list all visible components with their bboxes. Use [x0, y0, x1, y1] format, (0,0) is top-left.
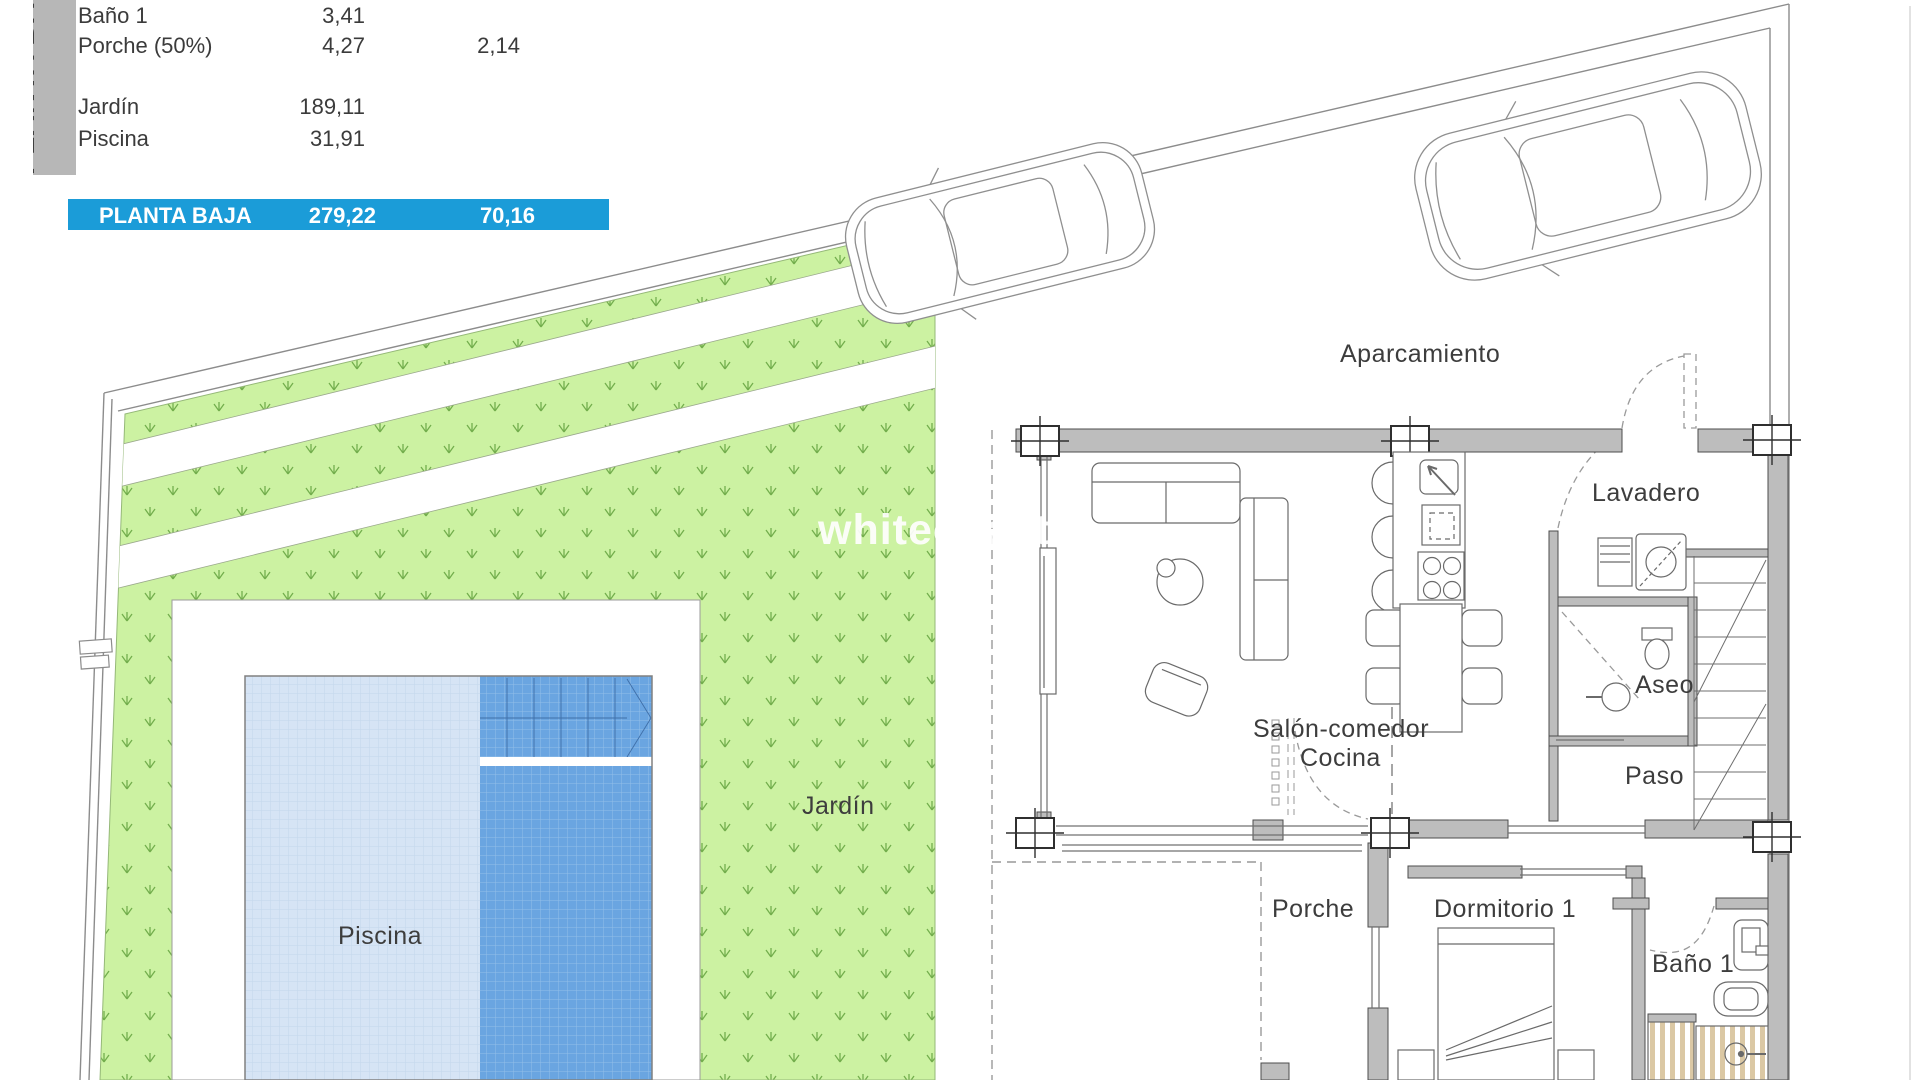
row-built-area: 31,91	[250, 126, 365, 152]
total-useful-area: 70,16	[403, 203, 535, 229]
room-label-jardin: Jardín	[802, 792, 874, 821]
row-built-area: 4,27	[250, 33, 365, 59]
watermark: whitecoast	[818, 506, 1050, 555]
gate-icon	[79, 639, 113, 669]
total-name: PLANTA BAJA	[99, 203, 252, 229]
stairs	[1694, 556, 1766, 830]
floor-tab: PLANTA BAJA	[33, 0, 76, 175]
toilet-icon-bano1	[1734, 920, 1768, 970]
row-useful-area: 2,14	[418, 33, 520, 59]
dining-table-icon	[1366, 604, 1502, 732]
row-built-area: 3,41	[250, 3, 365, 29]
toilet-icon-aseo	[1642, 628, 1672, 669]
armchair-icon	[1142, 659, 1212, 720]
room-label-piscina: Piscina	[338, 922, 422, 951]
row-name: Jardín	[78, 94, 139, 120]
room-label-cocina: Cocina	[1300, 744, 1381, 773]
row-name: Baño 1	[78, 3, 148, 29]
room-label-aparcamiento: Aparcamiento	[1340, 340, 1500, 369]
floor-tab-label: PLANTA BAJA	[33, 0, 42, 175]
bed-icon	[1398, 928, 1594, 1080]
pool	[245, 676, 652, 1080]
car-icon	[834, 121, 1167, 346]
basin-icon-aseo	[1586, 683, 1630, 711]
basin-icon-bano1	[1714, 982, 1768, 1016]
room-label-paso: Paso	[1625, 762, 1684, 791]
kitchen-counter	[1393, 452, 1465, 608]
room-label-porche: Porche	[1272, 895, 1354, 924]
shower-icon	[1648, 1022, 1768, 1080]
row-name: Porche (50%)	[78, 33, 213, 59]
row-name: Piscina	[78, 126, 149, 152]
tv-unit-icon	[1040, 548, 1056, 694]
suv-icon	[1401, 48, 1774, 305]
room-label-aseo: Aseo	[1635, 671, 1694, 700]
room-label-dormitorio1: Dormitorio 1	[1434, 895, 1576, 924]
sofa-icon	[1092, 463, 1240, 523]
total-built-area: 279,22	[248, 203, 376, 229]
room-label-salon: Salón-comedor	[1253, 715, 1429, 744]
row-built-area: 189,11	[250, 94, 365, 120]
room-label-lavadero: Lavadero	[1592, 479, 1700, 508]
coffee-table-icon	[1157, 559, 1203, 605]
floorplan-page: whitecoast Aparcamiento Lavadero Aseo Pa…	[0, 0, 1920, 1080]
loveseat-icon	[1240, 498, 1288, 660]
total-row-planta-baja: PLANTA BAJA 279,22 70,16	[68, 199, 609, 230]
washer-icon	[1598, 534, 1686, 590]
room-label-bano1: Baño 1	[1652, 950, 1734, 979]
